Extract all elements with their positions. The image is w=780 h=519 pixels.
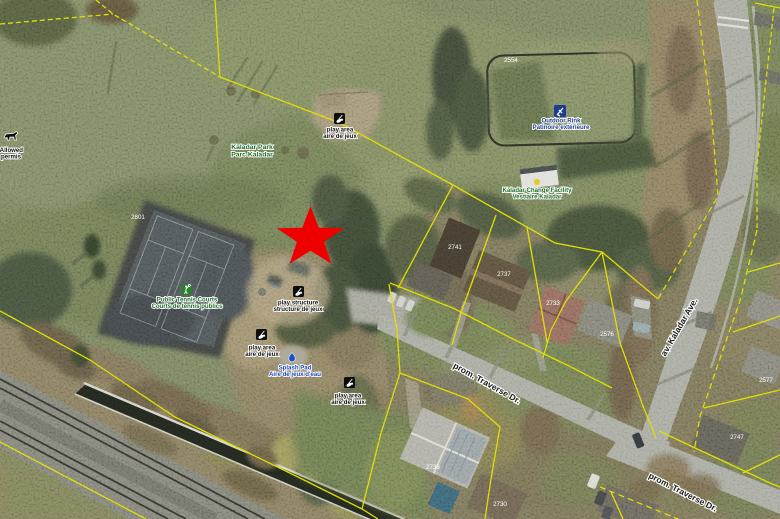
svg-text:structure de jeux: structure de jeux <box>273 306 323 313</box>
svg-text:aire de jeux: aire de jeux <box>331 399 365 406</box>
svg-text:2741: 2741 <box>448 244 462 251</box>
svg-text:2576: 2576 <box>600 331 614 338</box>
svg-text:2730: 2730 <box>493 501 507 508</box>
svg-text:aire de jeux: aire de jeux <box>245 351 279 358</box>
svg-text:Aire de jeux d'eau: Aire de jeux d'eau <box>269 371 321 378</box>
svg-text:2736: 2736 <box>426 464 440 471</box>
svg-text:2577: 2577 <box>759 377 773 384</box>
svg-text:Patinoire extérieure: Patinoire extérieure <box>533 124 591 131</box>
svg-text:2554: 2554 <box>504 57 518 64</box>
svg-text:Parc Kaladar: Parc Kaladar <box>231 152 273 159</box>
svg-text:2733: 2733 <box>546 300 560 307</box>
svg-text:Kaladar Park: Kaladar Park <box>231 144 273 151</box>
svg-text:Courts de tennis publics: Courts de tennis publics <box>151 303 223 310</box>
svg-text:Chiens permis: Chiens permis <box>0 154 22 161</box>
svg-text:2737: 2737 <box>497 271 511 278</box>
svg-text:aire de jeux: aire de jeux <box>323 133 357 140</box>
svg-text:Vestiaire Kaladar: Vestiaire Kaladar <box>512 194 562 201</box>
svg-text:2801: 2801 <box>131 214 145 221</box>
svg-text:2747: 2747 <box>730 434 744 441</box>
